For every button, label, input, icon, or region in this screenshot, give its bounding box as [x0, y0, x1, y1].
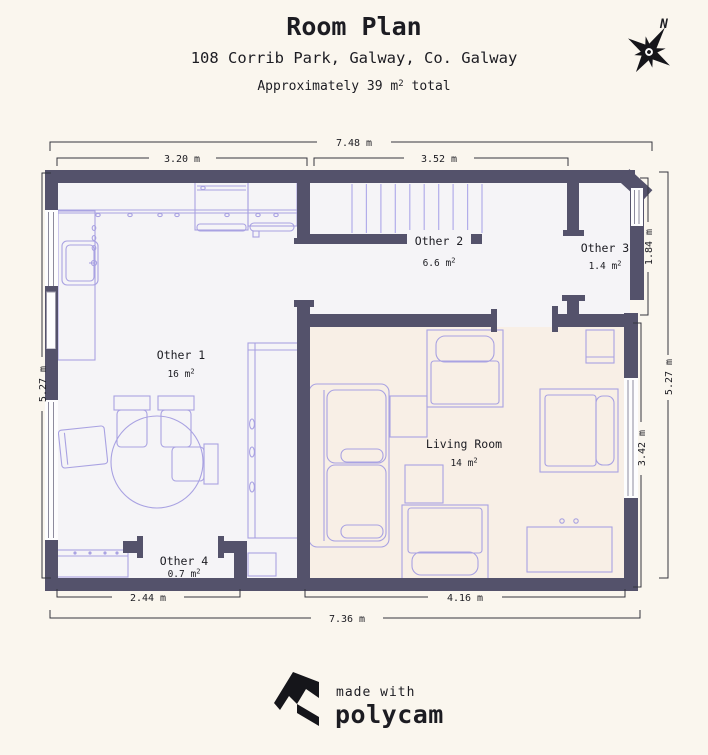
wall-living-top-left — [297, 314, 492, 327]
svg-text:7.48 m: 7.48 m — [336, 138, 372, 149]
window-left-upper — [45, 210, 58, 288]
door-jamb — [218, 536, 224, 558]
wall-other4-side — [234, 553, 247, 580]
svg-text:Other 1: Other 1 — [157, 348, 206, 362]
svg-text:0.7 m2: 0.7 m2 — [168, 568, 201, 581]
dim-bottom-total: 7.36 m — [50, 610, 640, 625]
dim-bottom-right: 4.16 m — [305, 589, 625, 604]
wall-living-top-right — [558, 314, 630, 327]
svg-text:2.44 m: 2.44 m — [130, 593, 166, 604]
wall-other3-divider — [567, 177, 579, 232]
wall-top — [45, 170, 635, 183]
footer: made with polycam — [274, 672, 444, 729]
door-jamb — [562, 295, 585, 301]
dim-top-right: 3.52 m — [314, 154, 568, 166]
compass-north-label: N — [659, 17, 668, 32]
window-living-right — [624, 378, 638, 498]
door-jamb — [552, 306, 558, 332]
svg-text:Living Room: Living Room — [426, 437, 502, 451]
door-jamb — [491, 309, 497, 332]
dim-bottom-left: 2.44 m — [57, 589, 240, 604]
svg-text:Other 2: Other 2 — [415, 234, 463, 248]
compass-rose: N — [615, 14, 686, 86]
wall-other4-right — [224, 541, 247, 553]
wall-partition-lower — [297, 302, 310, 578]
footer-brand: polycam — [335, 700, 444, 729]
door-jamb — [137, 536, 143, 558]
svg-text:5.27 m: 5.27 m — [38, 366, 49, 402]
floor-plan-page: Room Plan 108 Corrib Park, Galway, Co. G… — [0, 0, 708, 750]
dim-right-side: 5.27 m — [659, 172, 675, 578]
address-subtitle: 108 Corrib Park, Galway, Co. Galway — [191, 49, 518, 67]
svg-text:Other 4: Other 4 — [160, 554, 209, 568]
door-jamb — [563, 230, 584, 236]
svg-text:3.52 m: 3.52 m — [421, 154, 457, 165]
svg-text:7.36 m: 7.36 m — [329, 614, 365, 625]
footer-tagline: made with — [336, 685, 415, 700]
total-area-note: Approximately 39 m2 total — [257, 79, 450, 94]
svg-text:4.16 m: 4.16 m — [447, 593, 483, 604]
window-right-upper — [631, 188, 643, 226]
polycam-logo-icon — [274, 672, 319, 726]
page-title: Room Plan — [286, 12, 421, 41]
svg-text:1.4 m2: 1.4 m2 — [589, 260, 622, 273]
dim-top-left: 3.20 m — [57, 154, 307, 166]
compass-star-icon — [615, 14, 686, 86]
svg-text:Other 3: Other 3 — [581, 241, 630, 255]
svg-text:3.42 m: 3.42 m — [637, 430, 648, 466]
wall-partition-upper — [297, 183, 310, 240]
dim-top-total: 7.48 m — [50, 138, 652, 151]
svg-text:3.20 m: 3.20 m — [164, 154, 200, 165]
svg-text:6.6 m2: 6.6 m2 — [423, 257, 456, 270]
svg-text:5.27 m: 5.27 m — [664, 359, 675, 395]
window-left-lower — [45, 400, 58, 540]
header: Room Plan 108 Corrib Park, Galway, Co. G… — [191, 12, 518, 94]
svg-text:1.84 m: 1.84 m — [644, 229, 655, 265]
wall-bottom — [45, 578, 638, 591]
wall-other3-stub — [567, 301, 579, 315]
floor-living-room — [310, 327, 624, 578]
